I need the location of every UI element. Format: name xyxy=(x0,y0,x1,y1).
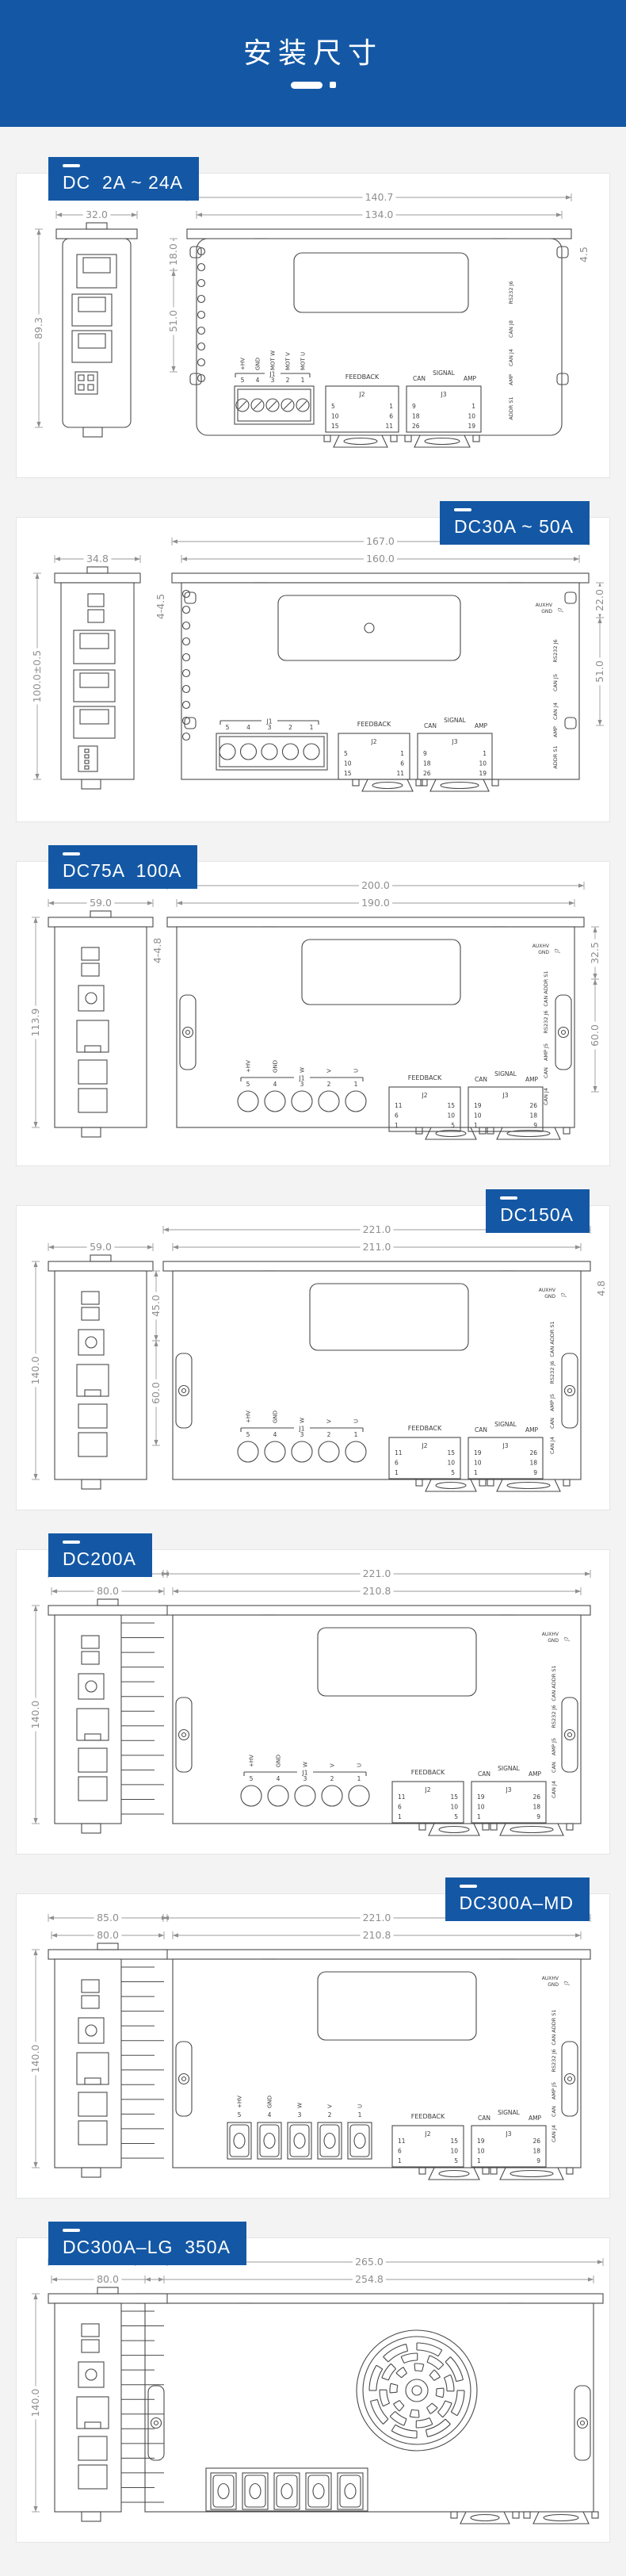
svg-text:5: 5 xyxy=(250,1775,254,1782)
svg-text:18: 18 xyxy=(412,413,420,420)
sections-container: +HVGNDMOT WMOT VMOT UJ154321FEEDBACKJ251… xyxy=(0,173,626,2543)
svg-text:1: 1 xyxy=(357,1775,361,1782)
svg-text:26: 26 xyxy=(529,1449,537,1456)
dsub-connector xyxy=(405,435,479,447)
svg-text:1: 1 xyxy=(389,403,393,410)
svg-text:19: 19 xyxy=(477,1793,485,1801)
dimension: 89.3 xyxy=(32,229,44,427)
section-label-dc30-50: DC30A ~ 50A xyxy=(440,501,590,545)
dimension: 200.0 xyxy=(167,879,584,891)
side-view xyxy=(48,911,153,1137)
section-label-dc2-24: DC 2A ~ 24A xyxy=(48,157,199,201)
dimension: 59.0 xyxy=(48,1241,153,1253)
svg-text:5: 5 xyxy=(226,724,230,731)
svg-text:CAN: CAN xyxy=(478,1770,490,1778)
svg-text:10: 10 xyxy=(450,2148,458,2155)
svg-text:CAN: CAN xyxy=(475,1076,487,1083)
section-card-dc75-100: +HVGNDWVUJ154321FEEDBACKJ2116115105CANSI… xyxy=(16,861,610,1166)
svg-text:1: 1 xyxy=(471,403,475,410)
svg-text:+HV: +HV xyxy=(246,1060,252,1073)
svg-text:3: 3 xyxy=(268,724,272,731)
dsub-connector xyxy=(416,1127,486,1139)
section-label-dc150: DC150A xyxy=(486,1189,590,1233)
dimension: 22.0 xyxy=(594,583,605,618)
dsub-connector xyxy=(490,2168,573,2180)
side-view xyxy=(55,567,140,789)
dsub-connector xyxy=(451,2512,519,2524)
svg-text:32.0: 32.0 xyxy=(86,209,108,220)
svg-text:34.8: 34.8 xyxy=(86,553,109,565)
svg-text:AUXHV: AUXHV xyxy=(542,1632,559,1637)
svg-text:167.0: 167.0 xyxy=(366,535,395,547)
svg-text:59.0: 59.0 xyxy=(90,897,112,909)
svg-text:10: 10 xyxy=(331,413,339,420)
svg-text:U: U xyxy=(357,2104,364,2108)
svg-text:1: 1 xyxy=(398,2157,402,2165)
side-view xyxy=(48,1255,153,1489)
svg-text:1: 1 xyxy=(474,1469,478,1476)
svg-text:CAN: CAN xyxy=(549,1418,555,1429)
dimension: 51.0 xyxy=(594,618,605,725)
svg-text:GND: GND xyxy=(544,1294,555,1299)
svg-text:AUXHV: AUXHV xyxy=(536,603,553,608)
svg-text:6: 6 xyxy=(389,413,393,420)
dimension: 160.0 xyxy=(181,553,579,565)
dimension: 51.0 xyxy=(167,270,179,372)
svg-text:2: 2 xyxy=(288,724,292,731)
section-card-dc300-lg: 85.080.0140.0265.0254.8DC300A–LG 350A xyxy=(16,2237,610,2543)
svg-text:J2: J2 xyxy=(425,1786,431,1793)
svg-text:265.0: 265.0 xyxy=(355,2256,384,2268)
svg-text:9: 9 xyxy=(533,1469,537,1476)
front-view: +HVGNDWVUJ154321FEEDBACKJ2116115105CANSI… xyxy=(167,917,584,1139)
svg-text:140.7: 140.7 xyxy=(365,191,394,203)
dsub-connector xyxy=(419,2168,489,2180)
svg-text:60.0: 60.0 xyxy=(150,1382,162,1404)
front-view xyxy=(136,2294,603,2524)
side-view xyxy=(48,1943,167,2177)
svg-text:ADDR S1: ADDR S1 xyxy=(508,396,514,419)
dimension: 210.8 xyxy=(173,1929,581,1941)
section-label-text: DC30A ~ 50A xyxy=(454,517,574,537)
svg-text:1: 1 xyxy=(354,1081,358,1088)
svg-text:2: 2 xyxy=(330,1775,334,1782)
svg-text:18: 18 xyxy=(532,1804,540,1811)
svg-text:3: 3 xyxy=(300,1431,304,1438)
svg-text:140.0: 140.0 xyxy=(29,1357,41,1385)
dimension: 60.0 xyxy=(589,979,601,1092)
svg-text:CAN: CAN xyxy=(543,1067,549,1078)
dimension: 190.0 xyxy=(177,897,574,909)
svg-text:3: 3 xyxy=(298,2111,302,2119)
svg-text:W: W xyxy=(300,1418,306,1423)
svg-text:5: 5 xyxy=(344,750,348,757)
svg-text:ADDR S1: ADDR S1 xyxy=(552,745,559,768)
svg-text:11: 11 xyxy=(395,1449,403,1456)
svg-text:11: 11 xyxy=(396,770,404,777)
svg-text:4: 4 xyxy=(273,1081,277,1088)
dimension: 140.0 xyxy=(29,1606,41,1824)
section-card-dc200: +HVGNDWVUJ154321FEEDBACKJ2116115105CANSI… xyxy=(16,1549,610,1854)
svg-text:CAN: CAN xyxy=(551,1762,557,1773)
svg-text:10: 10 xyxy=(477,1804,485,1811)
svg-text:18: 18 xyxy=(532,2148,540,2155)
svg-text:1: 1 xyxy=(398,1813,402,1820)
svg-text:AMP: AMP xyxy=(525,1426,539,1433)
svg-text:10: 10 xyxy=(474,1112,482,1120)
svg-text:MOT U: MOT U xyxy=(300,352,307,370)
svg-text:11: 11 xyxy=(398,1793,406,1801)
svg-text:200.0: 200.0 xyxy=(361,879,390,891)
svg-text:6: 6 xyxy=(395,1460,399,1467)
svg-text:V: V xyxy=(327,2104,334,2108)
svg-text:10: 10 xyxy=(344,760,352,767)
svg-text:GND: GND xyxy=(267,2096,273,2108)
svg-text:10: 10 xyxy=(479,760,487,767)
section-label-text: DC300A–MD xyxy=(460,1893,574,1913)
dimension: 34.8 xyxy=(55,553,140,565)
dimension: 134.0 xyxy=(197,209,562,220)
dsub-connector xyxy=(324,435,397,447)
svg-text:AMP: AMP xyxy=(529,2115,542,2122)
svg-text:GND: GND xyxy=(538,950,549,955)
svg-text:32.5: 32.5 xyxy=(589,942,601,964)
svg-text:AMP J5: AMP J5 xyxy=(551,2082,557,2099)
svg-text:2: 2 xyxy=(286,377,290,384)
svg-text:51.0: 51.0 xyxy=(594,660,605,683)
dimension: 221.0 xyxy=(163,1567,590,1579)
svg-text:SIGNAL: SIGNAL xyxy=(444,717,467,724)
svg-text:J3: J3 xyxy=(441,391,447,398)
svg-text:AMP: AMP xyxy=(525,1076,539,1083)
svg-text:3: 3 xyxy=(303,1775,307,1782)
svg-text:SIGNAL: SIGNAL xyxy=(433,369,456,377)
dimension: 59.0 xyxy=(48,897,153,909)
section-label-text: DC300A–LG 350A xyxy=(63,2237,231,2257)
svg-text:4.8: 4.8 xyxy=(595,1280,607,1296)
drawing-dc150: +HVGNDWVUJ154321FEEDBACKJ2116115105CANSI… xyxy=(17,1206,611,1510)
svg-text:2: 2 xyxy=(328,2111,332,2119)
svg-text:10: 10 xyxy=(474,1460,482,1467)
dsub-connector xyxy=(487,1479,570,1491)
svg-text:GND: GND xyxy=(273,1060,279,1073)
page: 安装尺寸 +HVGNDMOT WMOT VMOT UJ154321FEEDBAC… xyxy=(0,0,626,2543)
svg-text:26: 26 xyxy=(532,1793,540,1801)
underline-dash-icon xyxy=(291,82,323,89)
svg-text:GND: GND xyxy=(548,1638,559,1644)
svg-text:15: 15 xyxy=(331,423,339,430)
svg-text:MOT V: MOT V xyxy=(285,352,292,370)
svg-text:CAN ADDR S1: CAN ADDR S1 xyxy=(551,2009,557,2045)
underline-dot-icon xyxy=(330,82,336,88)
dimension: 32.5 xyxy=(589,927,601,979)
dsub-connector xyxy=(421,779,498,791)
svg-text:1: 1 xyxy=(477,1813,481,1820)
svg-text:AMP: AMP xyxy=(475,722,488,729)
section-label-text: DC75A 100A xyxy=(63,861,181,881)
dimension: 254.8 xyxy=(145,2273,594,2285)
svg-text:6: 6 xyxy=(400,760,404,767)
front-view: J154321FEEDBACKJ2510151611CANSIGNALAMPJ3… xyxy=(172,573,589,791)
svg-text:15: 15 xyxy=(447,1449,455,1456)
svg-text:J3: J3 xyxy=(452,738,458,745)
svg-text:80.0: 80.0 xyxy=(97,1585,119,1597)
svg-text:18.0: 18.0 xyxy=(167,243,179,266)
svg-text:5: 5 xyxy=(454,2157,458,2165)
dimension: 60.0 xyxy=(150,1341,162,1445)
dsub-connector xyxy=(487,1127,570,1139)
dimension: 18.0 xyxy=(167,239,179,270)
svg-text:SIGNAL: SIGNAL xyxy=(498,2109,521,2116)
svg-text:U: U xyxy=(353,1419,360,1423)
svg-text:CAN: CAN xyxy=(551,2106,557,2117)
svg-text:AMP: AMP xyxy=(508,374,514,385)
svg-text:CAN J4: CAN J4 xyxy=(543,1088,549,1105)
svg-text:19: 19 xyxy=(474,1102,482,1109)
svg-text:+HV: +HV xyxy=(237,2096,243,2108)
svg-text:15: 15 xyxy=(450,2138,458,2145)
svg-text:FEEDBACK: FEEDBACK xyxy=(408,1074,442,1081)
svg-text:J7: J7 xyxy=(558,607,563,613)
heatsink-fins xyxy=(121,1620,164,1817)
dimension: 80.0 xyxy=(52,1929,164,1941)
svg-text:26: 26 xyxy=(412,423,420,430)
svg-text:4.5: 4.5 xyxy=(578,247,590,262)
svg-text:CAN: CAN xyxy=(478,2115,490,2122)
svg-text:FEEDBACK: FEEDBACK xyxy=(408,1425,442,1432)
svg-text:210.8: 210.8 xyxy=(363,1929,391,1941)
svg-text:+HV: +HV xyxy=(249,1755,255,1767)
svg-text:J2: J2 xyxy=(371,738,377,745)
svg-text:11: 11 xyxy=(385,423,393,430)
svg-text:SIGNAL: SIGNAL xyxy=(498,1765,521,1772)
svg-text:221.0: 221.0 xyxy=(363,1223,391,1235)
svg-text:W: W xyxy=(297,2103,303,2108)
svg-text:6: 6 xyxy=(398,1804,402,1811)
dsub-connector xyxy=(490,1824,573,1835)
page-title: 安装尺寸 xyxy=(243,39,383,67)
svg-text:45.0: 45.0 xyxy=(150,1295,162,1317)
svg-text:CAN J4: CAN J4 xyxy=(549,1437,555,1454)
dimension: 4.5 xyxy=(578,243,590,266)
svg-text:15: 15 xyxy=(344,770,352,777)
dimension: 80.0 xyxy=(52,1585,164,1597)
svg-text:9: 9 xyxy=(423,750,427,757)
svg-text:6: 6 xyxy=(395,1112,399,1120)
svg-text:J3: J3 xyxy=(502,1092,509,1099)
svg-text:1: 1 xyxy=(477,2157,481,2165)
svg-text:89.3: 89.3 xyxy=(32,317,44,339)
svg-text:10: 10 xyxy=(450,1804,458,1811)
svg-text:1: 1 xyxy=(301,377,305,384)
label-dash-icon xyxy=(500,1196,517,1200)
svg-text:4: 4 xyxy=(268,2111,272,2119)
svg-text:+HV: +HV xyxy=(246,1410,252,1423)
svg-text:113.9: 113.9 xyxy=(29,1009,41,1037)
svg-text:RS232 J6: RS232 J6 xyxy=(551,1705,557,1728)
svg-text:J2: J2 xyxy=(359,391,365,398)
svg-text:RS232 J6: RS232 J6 xyxy=(551,2049,557,2072)
svg-text:1: 1 xyxy=(400,750,404,757)
label-dash-icon xyxy=(460,1885,477,1888)
svg-text:AMP: AMP xyxy=(464,375,477,382)
svg-text:FEEDBACK: FEEDBACK xyxy=(345,373,380,381)
svg-text:CAN J8: CAN J8 xyxy=(508,320,514,338)
svg-text:100.0±0.5: 100.0±0.5 xyxy=(31,650,43,702)
front-view: +HVGNDMOT WMOT VMOT UJ154321FEEDBACKJ251… xyxy=(187,229,571,447)
svg-text:CAN ADDR S1: CAN ADDR S1 xyxy=(543,970,549,1006)
svg-text:1: 1 xyxy=(354,1431,358,1438)
svg-text:CAN J4: CAN J4 xyxy=(552,702,559,720)
section-card-dc150: +HVGNDWVUJ154321FEEDBACKJ2116115105CANSI… xyxy=(16,1205,610,1510)
svg-text:140.0: 140.0 xyxy=(29,2045,41,2073)
svg-text:5: 5 xyxy=(246,1431,250,1438)
svg-text:15: 15 xyxy=(450,1793,458,1801)
svg-text:J3: J3 xyxy=(502,1442,509,1449)
header-banner: 安装尺寸 xyxy=(0,0,626,127)
dsub-connector xyxy=(419,1824,489,1835)
svg-text:CAN: CAN xyxy=(424,722,437,729)
svg-text:9: 9 xyxy=(412,403,416,410)
svg-text:18: 18 xyxy=(529,1112,537,1120)
svg-text:59.0: 59.0 xyxy=(90,1241,112,1253)
svg-text:GND: GND xyxy=(273,1410,279,1423)
svg-text:10: 10 xyxy=(447,1460,455,1467)
svg-text:W: W xyxy=(303,1762,309,1767)
dimension: 211.0 xyxy=(173,1241,581,1253)
front-view: +HVGNDWVU54321FEEDBACKJ2116115105CANSIGN… xyxy=(163,1950,590,2180)
svg-text:19: 19 xyxy=(477,2138,485,2145)
svg-text:5: 5 xyxy=(454,1813,458,1820)
svg-text:10: 10 xyxy=(477,2148,485,2155)
svg-text:FEEDBACK: FEEDBACK xyxy=(411,2113,445,2120)
dimension: 140.0 xyxy=(29,2294,41,2512)
front-view: +HVGNDWVUJ154321FEEDBACKJ2116115105CANSI… xyxy=(163,1261,590,1491)
svg-text:CAN: CAN xyxy=(413,375,426,382)
dimension: 210.8 xyxy=(173,1585,581,1597)
svg-text:3: 3 xyxy=(300,1081,304,1088)
svg-text:U: U xyxy=(357,1763,363,1767)
svg-text:AMP: AMP xyxy=(529,1770,542,1778)
svg-text:210.8: 210.8 xyxy=(363,1585,391,1597)
svg-text:J7: J7 xyxy=(561,1292,567,1298)
svg-text:RS232 J6: RS232 J6 xyxy=(543,1010,549,1033)
svg-text:CAN: CAN xyxy=(475,1426,487,1433)
svg-text:140.0: 140.0 xyxy=(29,1701,41,1729)
svg-text:GND: GND xyxy=(548,1982,559,1988)
svg-text:1: 1 xyxy=(395,1469,399,1476)
section-label-dc300-md: DC300A–MD xyxy=(445,1877,590,1921)
dimension: 113.9 xyxy=(29,917,41,1127)
dimension: 100.0±0.5 xyxy=(31,573,43,779)
drawing-dc2-24: +HVGNDMOT WMOT VMOT UJ154321FEEDBACKJ251… xyxy=(17,174,611,478)
section-label-dc300-lg: DC300A–LG 350A xyxy=(48,2222,246,2265)
svg-text:AMP J5: AMP J5 xyxy=(549,1394,555,1411)
svg-text:J2: J2 xyxy=(422,1442,428,1449)
svg-text:5: 5 xyxy=(238,2111,242,2119)
svg-text:18: 18 xyxy=(529,1460,537,1467)
svg-text:26: 26 xyxy=(423,770,431,777)
section-card-dc300-md: +HVGNDWVU54321FEEDBACKJ2116115105CANSIGN… xyxy=(16,1893,610,2199)
svg-text:CAN J4: CAN J4 xyxy=(551,1781,557,1798)
drawing-dc200: +HVGNDWVUJ154321FEEDBACKJ2116115105CANSI… xyxy=(17,1550,611,1854)
svg-text:+HV: +HV xyxy=(240,358,246,370)
svg-text:5: 5 xyxy=(246,1081,250,1088)
svg-text:1: 1 xyxy=(474,1122,478,1129)
svg-text:1: 1 xyxy=(310,724,314,731)
svg-text:V: V xyxy=(326,1069,333,1073)
svg-text:19: 19 xyxy=(468,423,475,430)
svg-text:190.0: 190.0 xyxy=(361,897,390,909)
svg-text:4: 4 xyxy=(277,1775,281,1782)
svg-text:5: 5 xyxy=(331,403,335,410)
svg-text:5: 5 xyxy=(451,1122,455,1129)
svg-text:6: 6 xyxy=(398,2148,402,2155)
label-dash-icon xyxy=(63,2229,80,2232)
svg-text:85.0: 85.0 xyxy=(97,1912,119,1923)
svg-text:FEEDBACK: FEEDBACK xyxy=(357,721,391,728)
svg-text:SIGNAL: SIGNAL xyxy=(494,1070,517,1077)
svg-text:W: W xyxy=(300,1067,306,1073)
svg-text:4: 4 xyxy=(256,377,260,384)
svg-text:9: 9 xyxy=(536,1813,540,1820)
svg-text:J3: J3 xyxy=(506,2130,512,2138)
svg-text:GND: GND xyxy=(276,1755,282,1767)
svg-text:221.0: 221.0 xyxy=(363,1567,391,1579)
svg-text:1: 1 xyxy=(358,2111,362,2119)
drawing-dc75-100: +HVGNDWVUJ154321FEEDBACKJ2116115105CANSI… xyxy=(17,862,611,1166)
side-view xyxy=(48,1599,167,1833)
svg-text:GND: GND xyxy=(255,358,261,370)
section-card-dc2-24: +HVGNDMOT WMOT VMOT UJ154321FEEDBACKJ251… xyxy=(16,173,610,478)
svg-text:11: 11 xyxy=(398,2138,406,2145)
svg-text:5: 5 xyxy=(241,377,245,384)
svg-text:26: 26 xyxy=(532,2138,540,2145)
svg-text:10: 10 xyxy=(447,1112,455,1120)
svg-text:J2: J2 xyxy=(425,2130,431,2138)
section-card-dc30-50: J154321FEEDBACKJ2510151611CANSIGNALAMPJ3… xyxy=(16,517,610,822)
svg-text:9: 9 xyxy=(536,2157,540,2165)
dimension: 45.0 xyxy=(150,1271,162,1341)
dsub-connector xyxy=(416,1479,486,1491)
drawing-dc300-lg: 85.080.0140.0265.0254.8 xyxy=(17,2238,611,2543)
svg-text:11: 11 xyxy=(395,1102,403,1109)
svg-text:AUXHV: AUXHV xyxy=(542,1976,559,1981)
drawing-dc30-50: J154321FEEDBACKJ2510151611CANSIGNALAMPJ3… xyxy=(17,518,611,822)
svg-text:22.0: 22.0 xyxy=(594,589,605,611)
svg-text:80.0: 80.0 xyxy=(97,2273,119,2285)
drawing-dc300-md: +HVGNDWVU54321FEEDBACKJ2116115105CANSIGN… xyxy=(17,1894,611,2199)
svg-text:MOT W: MOT W xyxy=(270,350,277,370)
svg-text:254.8: 254.8 xyxy=(355,2273,384,2285)
svg-text:26: 26 xyxy=(529,1102,537,1109)
svg-text:J2: J2 xyxy=(422,1092,428,1099)
svg-text:RS232 J6: RS232 J6 xyxy=(552,639,559,662)
svg-text:FEEDBACK: FEEDBACK xyxy=(411,1769,445,1776)
dimension: 140.7 xyxy=(187,191,571,203)
svg-text:211.0: 211.0 xyxy=(363,1241,391,1253)
svg-text:4: 4 xyxy=(246,724,250,731)
dsub-connector xyxy=(353,779,422,791)
section-label-dc75-100: DC75A 100A xyxy=(48,845,197,889)
dimension: 32.0 xyxy=(56,209,137,220)
svg-text:J7: J7 xyxy=(564,1981,570,1986)
svg-text:GND: GND xyxy=(541,609,552,614)
side-connector-labels: RS232 J6CAN J8CAN J4AMPADDR S1 xyxy=(508,281,514,419)
dimension: 85.0 xyxy=(48,1912,167,1923)
svg-text:AUXHV: AUXHV xyxy=(532,944,550,949)
svg-text:AMP: AMP xyxy=(552,726,559,737)
